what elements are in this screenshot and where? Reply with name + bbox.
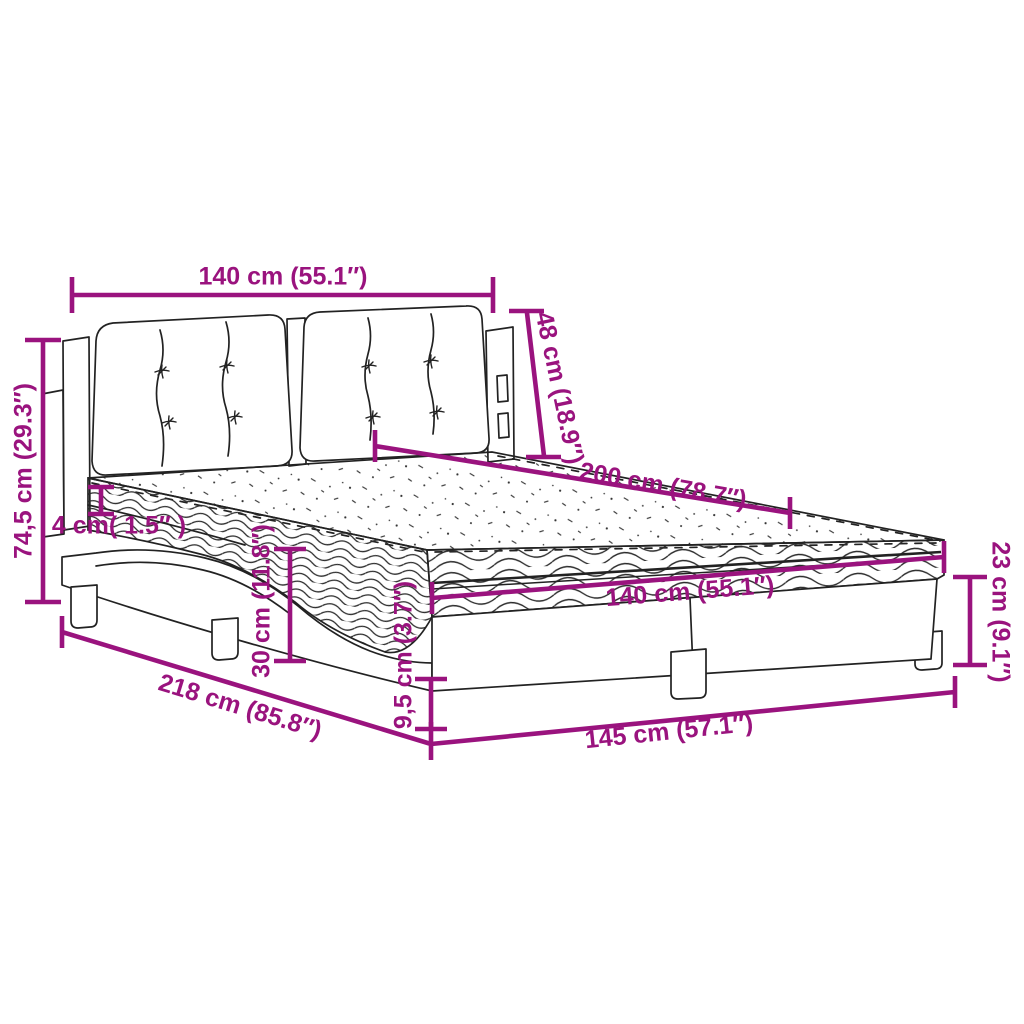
headboard-cushion-left bbox=[92, 315, 292, 475]
headboard-inner-post bbox=[63, 337, 90, 530]
bed-leg-head bbox=[71, 585, 97, 628]
dim-label-base-rail-height: 9,5 cm (3.7″) bbox=[392, 581, 417, 729]
headboard-cushion-right bbox=[300, 306, 489, 461]
dim-label-under-clearance: 30 cm (11.8″) bbox=[250, 524, 275, 678]
dim-label-topper-thickness: 4 cm( 1.5″ ) bbox=[52, 514, 186, 539]
dim-label-total-height: 74,5 cm (29.3″) bbox=[12, 383, 37, 559]
dim-label-frame-corner-height: 23 cm (9.1″) bbox=[988, 541, 1013, 682]
bed-leg-middle bbox=[212, 618, 238, 660]
dim-line-frame-corner-height bbox=[953, 577, 987, 665]
bed-dimension-diagram: 140 cm (55.1″) 48 cm (18.9″) 74,5 cm (29… bbox=[0, 0, 1024, 1024]
dim-label-headboard-width: 140 cm (55.1″) bbox=[198, 265, 367, 290]
bed-leg-foot bbox=[671, 649, 706, 699]
headboard-right-post bbox=[486, 327, 514, 462]
